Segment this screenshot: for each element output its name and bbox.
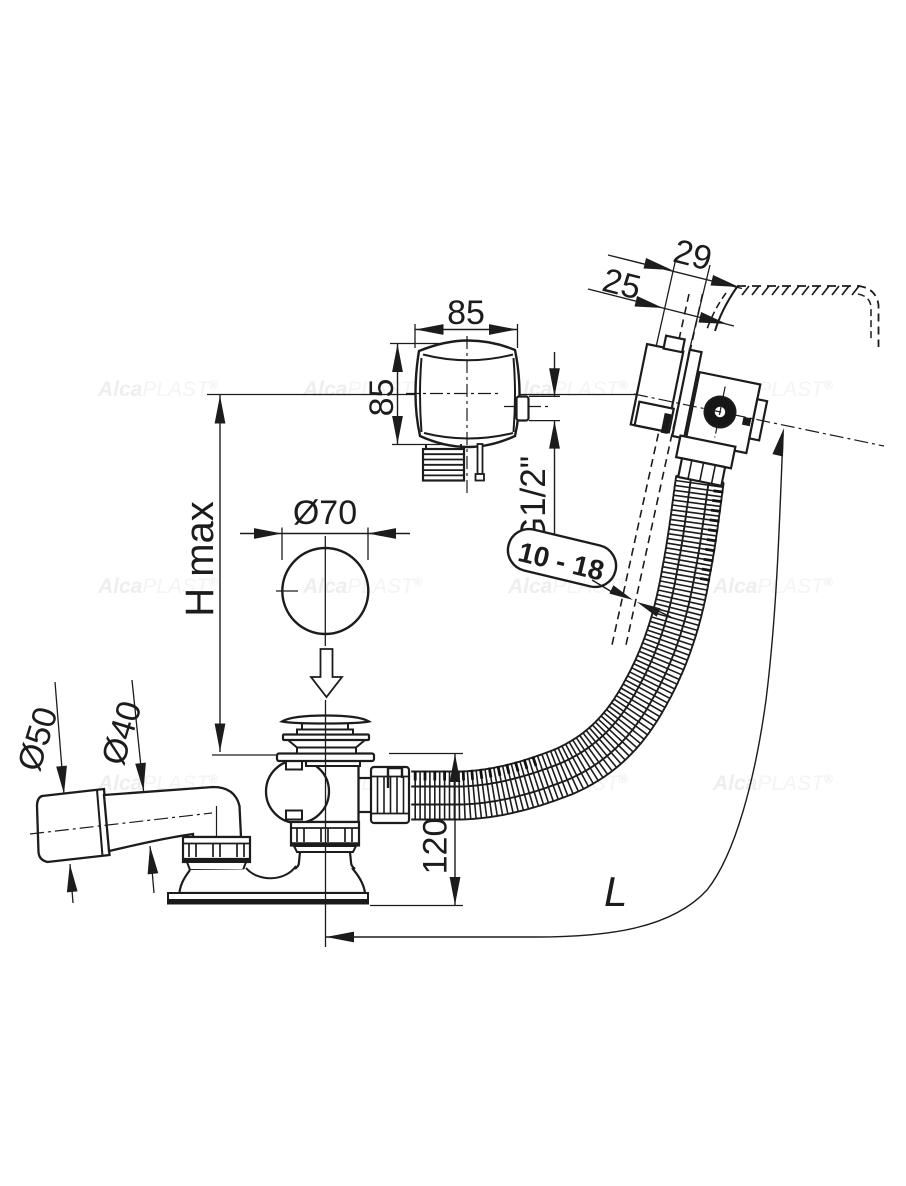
svg-text:AlcaPLAST®: AlcaPLAST® — [302, 575, 423, 598]
svg-text:120: 120 — [417, 818, 455, 875]
svg-text:AlcaPLAST®: AlcaPLAST® — [97, 378, 218, 401]
svg-text:Ø70: Ø70 — [293, 494, 357, 532]
svg-text:AlcaPLAST®: AlcaPLAST® — [712, 575, 833, 598]
svg-text:85: 85 — [447, 294, 485, 332]
svg-text:AlcaPLAST®: AlcaPLAST® — [712, 772, 833, 795]
svg-text:L: L — [604, 868, 627, 915]
svg-text:85: 85 — [363, 379, 401, 417]
svg-text:H max: H max — [178, 501, 222, 617]
